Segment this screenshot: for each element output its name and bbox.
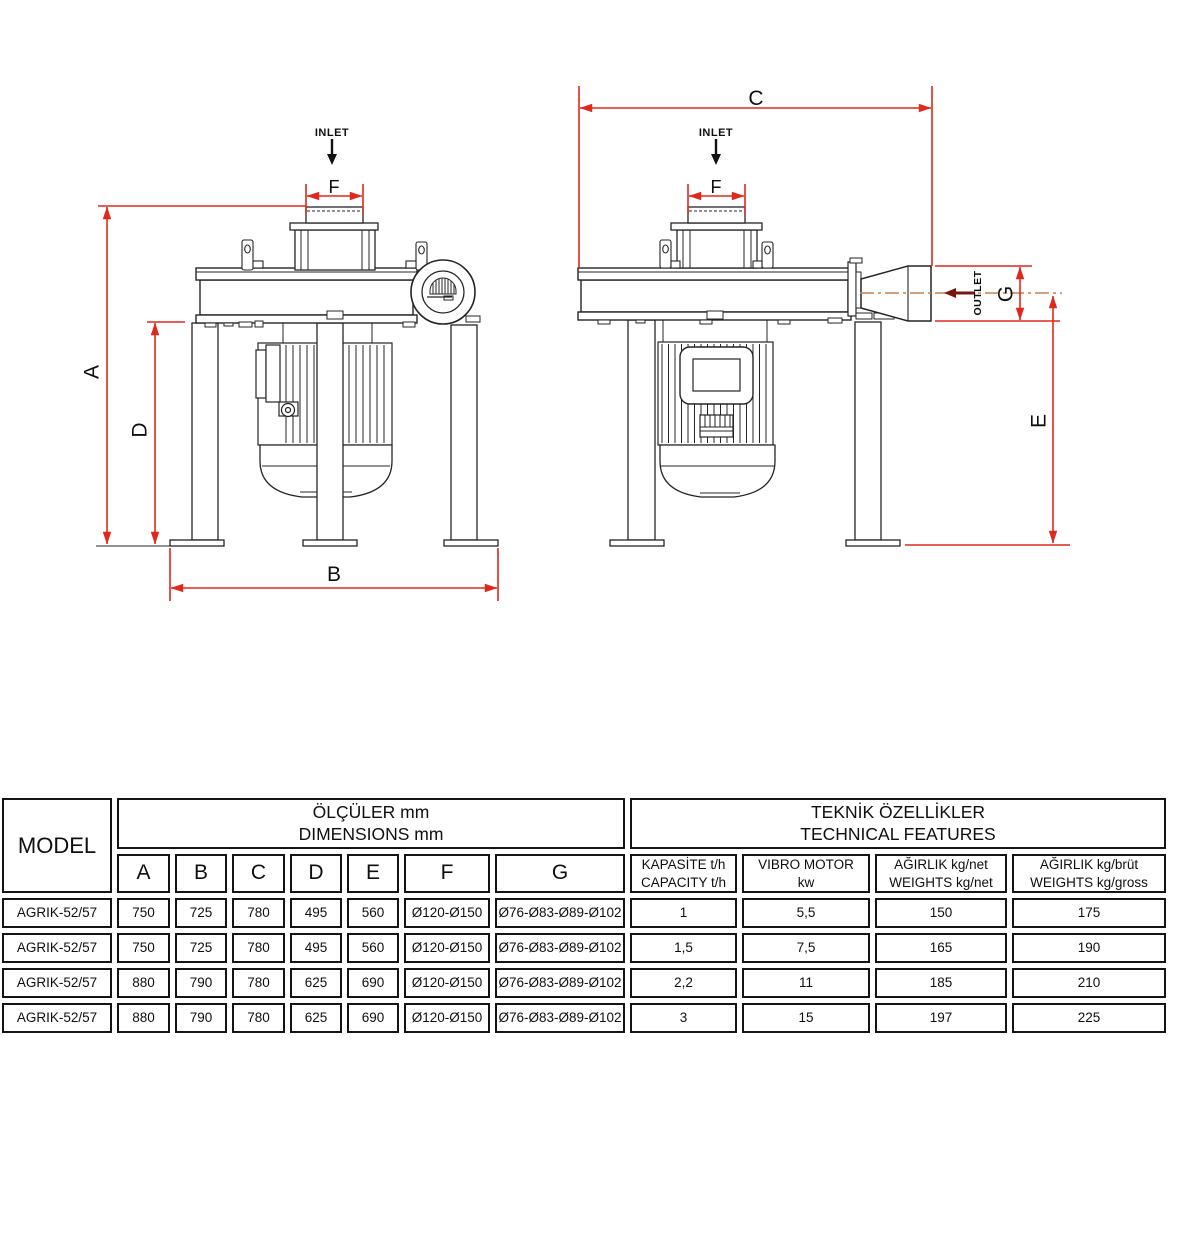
table-cell: 5,5 <box>742 898 870 928</box>
table-cell: 780 <box>232 1003 285 1033</box>
dim-A-label: A <box>81 365 104 379</box>
outlet-arrow-icon <box>944 288 975 298</box>
weight-gross-line1: AĞIRLIK kg/brüt <box>1040 856 1138 874</box>
table-cell: 15 <box>742 1003 870 1033</box>
spec-table: MODEL ÖLÇÜLER mm DIMENSIONS mm TEKNİK ÖZ… <box>2 798 1166 1033</box>
col-header-F: F <box>404 854 490 893</box>
front-inlet-label: INLET <box>315 127 349 139</box>
table-cell: 210 <box>1012 968 1166 998</box>
table-cell: 780 <box>232 933 285 963</box>
motor-line2: kw <box>798 874 815 892</box>
table-cell: AGRIK-52/57 <box>2 898 112 928</box>
inlet-flange-front <box>290 207 378 270</box>
table-cell: 690 <box>347 1003 399 1033</box>
table-cell: 725 <box>175 933 227 963</box>
support-legs-front <box>170 323 498 546</box>
table-cell: 225 <box>1012 1003 1166 1033</box>
table-cell: Ø76-Ø83-Ø89-Ø102 <box>495 933 625 963</box>
table-cell: 185 <box>875 968 1007 998</box>
table-cell: 495 <box>290 933 342 963</box>
col-header-motor: VIBRO MOTOR kw <box>742 854 870 893</box>
table-cell: 7,5 <box>742 933 870 963</box>
model-header: MODEL <box>2 798 112 893</box>
table-cell: 880 <box>117 1003 170 1033</box>
table-cell: 750 <box>117 898 170 928</box>
table-cell: Ø76-Ø83-Ø89-Ø102 <box>495 898 625 928</box>
col-header-B: B <box>175 854 227 893</box>
foot <box>303 540 357 546</box>
table-cell: 690 <box>347 968 399 998</box>
vibro-motor-side <box>658 320 775 497</box>
foot <box>170 540 224 546</box>
suspension-rods <box>663 320 767 342</box>
dim-G-label: G <box>995 286 1018 302</box>
dimensions-group-line2: DIMENSIONS mm <box>299 824 444 846</box>
table-cell: 780 <box>232 898 285 928</box>
table-cell: 790 <box>175 968 227 998</box>
table-cell: 190 <box>1012 933 1166 963</box>
table-cell: 780 <box>232 968 285 998</box>
front-view <box>96 207 498 546</box>
col-header-D: D <box>290 854 342 893</box>
table-cell: 2,2 <box>630 968 737 998</box>
table-cell: 150 <box>875 898 1007 928</box>
foot <box>610 540 664 546</box>
table-cell: Ø120-Ø150 <box>404 898 490 928</box>
table-cell: 1,5 <box>630 933 737 963</box>
table-cell: AGRIK-52/57 <box>2 933 112 963</box>
inlet-flange-side <box>671 207 762 268</box>
outlet-flange-circle <box>411 260 475 324</box>
support-legs-side <box>610 320 900 546</box>
table-cell: 560 <box>347 933 399 963</box>
dim-C-label: C <box>748 87 763 110</box>
table-cell: AGRIK-52/57 <box>2 968 112 998</box>
table-cell: AGRIK-52/57 <box>2 1003 112 1033</box>
table-cell: Ø120-Ø150 <box>404 1003 490 1033</box>
table-cell: 790 <box>175 1003 227 1033</box>
side-inlet-label: INLET <box>699 127 733 139</box>
outlet-cone <box>848 258 931 321</box>
col-header-A: A <box>117 854 170 893</box>
motor-line1: VIBRO MOTOR <box>758 856 854 874</box>
dim-B-label: B <box>327 563 341 586</box>
dimensions-group-header: ÖLÇÜLER mm DIMENSIONS mm <box>117 798 625 849</box>
table-cell: 880 <box>117 968 170 998</box>
table-cell: 495 <box>290 898 342 928</box>
weight-net-line2: WEIGHTS kg/net <box>889 874 993 892</box>
table-cell: Ø76-Ø83-Ø89-Ø102 <box>495 968 625 998</box>
table-cell: 197 <box>875 1003 1007 1033</box>
side-outlet-label: OUTLET <box>972 270 984 315</box>
foot <box>846 540 900 546</box>
fan-housing-side <box>578 268 851 324</box>
eyebolt <box>282 404 295 417</box>
col-header-weight-net: AĞIRLIK kg/net WEIGHTS kg/net <box>875 854 1007 893</box>
drawing-labels: INLET F A D B C INLET F OUTLET G E <box>81 87 1051 586</box>
col-header-E: E <box>347 854 399 893</box>
capacity-line2: CAPACITY t/h <box>641 874 726 892</box>
side-view <box>578 207 1062 546</box>
technical-drawing: INLET F A D B C INLET F OUTLET G E <box>0 0 1177 700</box>
table-cell: 560 <box>347 898 399 928</box>
dim-D-label: D <box>129 422 152 437</box>
table-cell: 625 <box>290 1003 342 1033</box>
foot <box>444 540 498 546</box>
features-group-line1: TEKNİK ÖZELLİKLER <box>811 802 985 824</box>
weight-net-line1: AĞIRLIK kg/net <box>894 856 988 874</box>
datasheet-page: { "drawing": { "front_view": {"inlet": "… <box>0 0 1177 1246</box>
col-header-weight-gross: AĞIRLIK kg/brüt WEIGHTS kg/gross <box>1012 854 1166 893</box>
table-cell: 750 <box>117 933 170 963</box>
capacity-line1: KAPASİTE t/h <box>642 856 726 874</box>
features-group-header: TEKNİK ÖZELLİKLER TECHNICAL FEATURES <box>630 798 1166 849</box>
inlet-arrow-icon <box>327 139 721 165</box>
table-cell: Ø120-Ø150 <box>404 933 490 963</box>
table-cell: 1 <box>630 898 737 928</box>
side-dim-F-label: F <box>711 177 722 197</box>
dim-E-label: E <box>1028 414 1051 428</box>
table-cell: 3 <box>630 1003 737 1033</box>
table-cell: 175 <box>1012 898 1166 928</box>
table-cell: Ø76-Ø83-Ø89-Ø102 <box>495 1003 625 1033</box>
table-cell: 625 <box>290 968 342 998</box>
table-cell: 165 <box>875 933 1007 963</box>
col-header-capacity: KAPASİTE t/h CAPACITY t/h <box>630 854 737 893</box>
features-group-line2: TECHNICAL FEATURES <box>800 824 995 846</box>
table-cell: 11 <box>742 968 870 998</box>
weight-gross-line2: WEIGHTS kg/gross <box>1030 874 1148 892</box>
dim-F-label: F <box>329 177 340 197</box>
motor-bell <box>660 445 775 497</box>
table-cell: Ø120-Ø150 <box>404 968 490 998</box>
table-cell: 725 <box>175 898 227 928</box>
col-header-C: C <box>232 854 285 893</box>
dimensions-group-line1: ÖLÇÜLER mm <box>313 802 430 824</box>
col-header-G: G <box>495 854 625 893</box>
